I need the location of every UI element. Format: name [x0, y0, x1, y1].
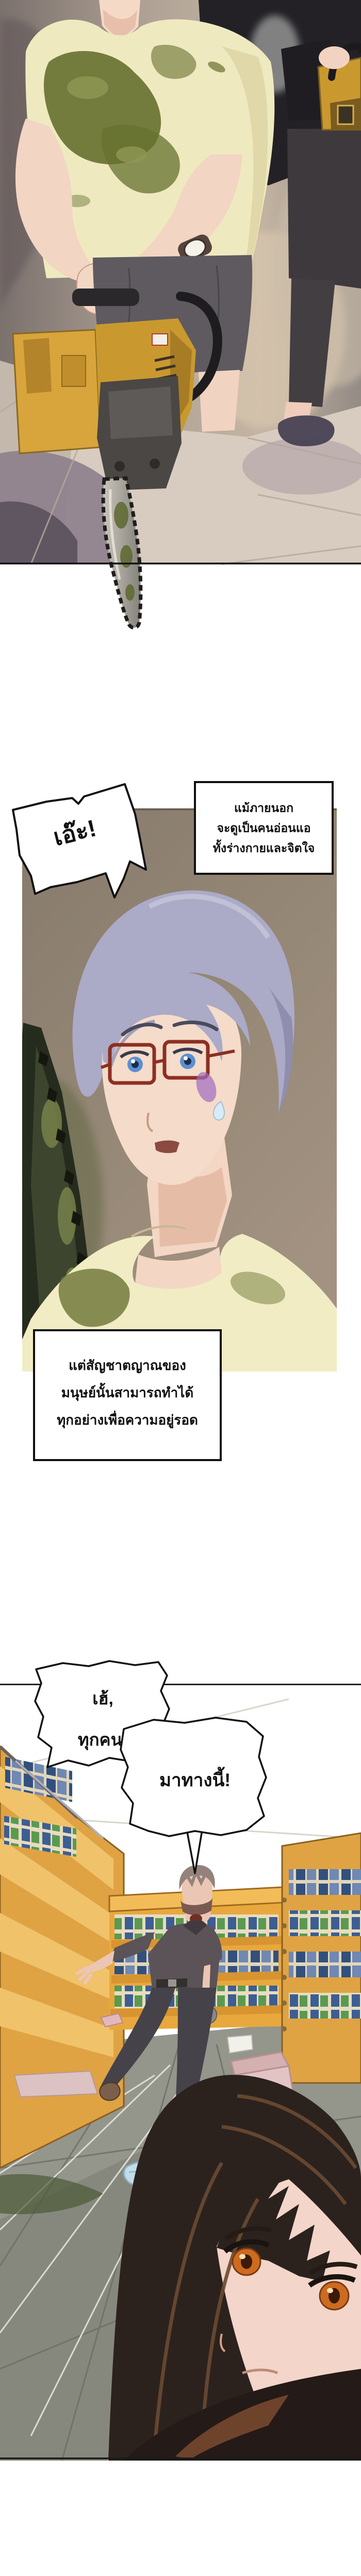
panel3-border-bottom: [0, 2458, 361, 2460]
caption-line: จะดูเป็นคนอ่อนแอ: [217, 818, 310, 838]
panel1-art: [0, 0, 361, 631]
speech-bubble-comehere: มาทางนี้!: [118, 1716, 272, 1876]
caption-box-top: แม้ภายนอก จะดูเป็นคนอ่อนแอ ทั้งร่างกายแล…: [194, 781, 334, 875]
caption-line: ทั้งร่างกายและจิตใจ: [213, 838, 315, 858]
caption-line: แม้ภายนอก: [234, 798, 293, 818]
comic-page: แม้ภายนอก จะดูเป็นคนอ่อนแอ ทั้งร่างกายแล…: [0, 0, 361, 2576]
mouth: [155, 1141, 179, 1154]
hey-line1: เฮ้,: [32, 1685, 174, 1712]
caption-box-bottom: แต่สัญชาตญาณของ มนุษย์นั้นสามารถทำได้ ทุ…: [33, 1329, 222, 1461]
comehere-text: มาทางนี้!: [118, 1766, 272, 1794]
caption-line: มนุษย์นั้นสามารถทำได้: [61, 1379, 193, 1406]
caption-line: แต่สัญชาตญาณของ: [69, 1352, 186, 1379]
right-shelf: [282, 1833, 361, 2083]
speech-bubble-surprise: เอ๊ะ!: [8, 779, 152, 905]
caption-line: ทุกอย่างเพื่อความอยู่รอด: [57, 1406, 198, 1434]
panel-chainsaw-scene: [0, 0, 361, 631]
panel1-border: [0, 563, 361, 565]
